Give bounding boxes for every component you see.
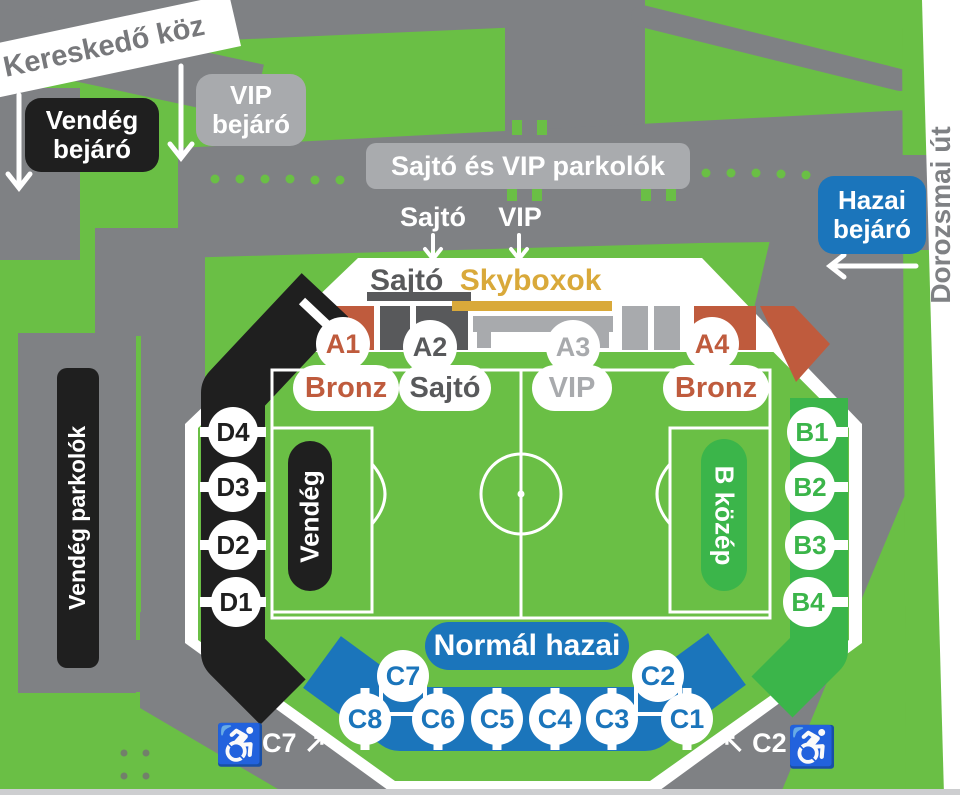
gate-label-vip: VIP xyxy=(494,202,546,233)
wheelchair-icon-left: ♿ xyxy=(215,722,265,769)
pill-bronz-left-label: Bronz xyxy=(305,372,387,405)
badge-vendeg-bejaro: Vendég bejáró xyxy=(25,98,159,172)
small-dots xyxy=(121,750,150,780)
badge-vendeg-parkolok-label: Vendég parkolók xyxy=(65,426,91,610)
area-pill-b-kozep-label: B közép xyxy=(709,465,740,565)
section-label-c4: C4 xyxy=(538,704,573,735)
section-label-c2: C2 xyxy=(641,661,676,692)
area-pill-b-kozep: B közép xyxy=(701,439,747,591)
section-circle-c4: C4 xyxy=(529,693,581,745)
stadium-map: Kereskedő köz Dorozsmai út Vendég bejáró… xyxy=(0,0,960,795)
section-circle-c8: C8 xyxy=(339,693,391,745)
section-circle-b2: B2 xyxy=(785,462,835,512)
section-label-b2: B2 xyxy=(793,472,826,503)
area-pill-vendeg: Vendég xyxy=(288,441,332,591)
section-label-b4: B4 xyxy=(791,587,824,618)
section-circle-c3: C3 xyxy=(586,693,638,745)
section-circle-c5: C5 xyxy=(471,693,523,745)
pill-vip: VIP xyxy=(532,365,612,411)
access-label-c7: C7 ↗ xyxy=(262,728,327,759)
pill-sajto: Sajtó xyxy=(399,365,491,411)
section-circle-b4: B4 xyxy=(783,577,833,627)
stadium-roof-heading: Sajtó Skyboxok xyxy=(370,264,601,298)
pill-vip-label: VIP xyxy=(549,372,596,405)
section-label-b3: B3 xyxy=(793,530,826,561)
section-circle-c7: C7 xyxy=(377,650,429,702)
section-circle-c1: C1 xyxy=(661,693,713,745)
section-circle-b1: B1 xyxy=(787,407,837,457)
section-label-d4: D4 xyxy=(216,417,249,448)
section-circle-d4: D4 xyxy=(208,407,258,457)
roof-label-skyboxok: Skyboxok xyxy=(460,264,602,297)
section-circle-d3: D3 xyxy=(208,462,258,512)
area-pill-normal-hazai: Normál hazai xyxy=(425,622,629,670)
section-label-c6: C6 xyxy=(421,704,456,735)
gate-label-sajto: Sajtó xyxy=(396,202,470,233)
pill-bronz-left: Bronz xyxy=(293,365,399,411)
stadium-shapes xyxy=(185,258,862,793)
badge-hazai-bejaro: Hazai bejáró xyxy=(818,176,926,254)
section-label-d1: D1 xyxy=(219,587,252,618)
section-label-c1: C1 xyxy=(670,704,705,735)
badge-sajto-vip-parkolok: Sajtó és VIP parkolók xyxy=(366,143,690,189)
section-label-c8: C8 xyxy=(348,704,383,735)
section-circle-c6: C6 xyxy=(412,693,464,745)
section-label-d3: D3 xyxy=(216,472,249,503)
section-label-a3: A3 xyxy=(556,332,591,363)
badge-vendeg-parkolok: Vendég parkolók xyxy=(57,368,99,668)
section-label-c7: C7 xyxy=(386,661,421,692)
section-label-d2: D2 xyxy=(216,530,249,561)
roof-label-sajto: Sajtó xyxy=(370,264,443,297)
pill-bronz-right-label: Bronz xyxy=(675,372,757,405)
badge-vip-bejaro: VIP bejáró xyxy=(196,74,306,146)
section-circle-a4: A4 xyxy=(685,317,739,371)
section-label-a4: A4 xyxy=(695,329,730,360)
pill-bronz-right: Bronz xyxy=(663,365,769,411)
section-circle-a1: A1 xyxy=(316,317,370,371)
section-circle-d1: D1 xyxy=(211,577,261,627)
section-circle-c2: C2 xyxy=(632,650,684,702)
wheelchair-icon-right: ♿ xyxy=(787,724,837,771)
bottom-edge-strip xyxy=(0,789,960,795)
section-circle-d2: D2 xyxy=(208,520,258,570)
street-label-dorozsmai-ut: Dorozsmai út xyxy=(925,126,957,303)
section-label-a1: A1 xyxy=(326,329,361,360)
section-label-c5: C5 xyxy=(480,704,515,735)
section-label-b1: B1 xyxy=(795,417,828,448)
section-label-c3: C3 xyxy=(595,704,630,735)
area-pill-vendeg-label: Vendég xyxy=(295,470,326,562)
section-circle-b3: B3 xyxy=(785,520,835,570)
access-label-c2: ↖ C2 xyxy=(722,728,787,759)
section-label-a2: A2 xyxy=(413,332,448,363)
pill-sajto-label: Sajtó xyxy=(410,372,481,405)
